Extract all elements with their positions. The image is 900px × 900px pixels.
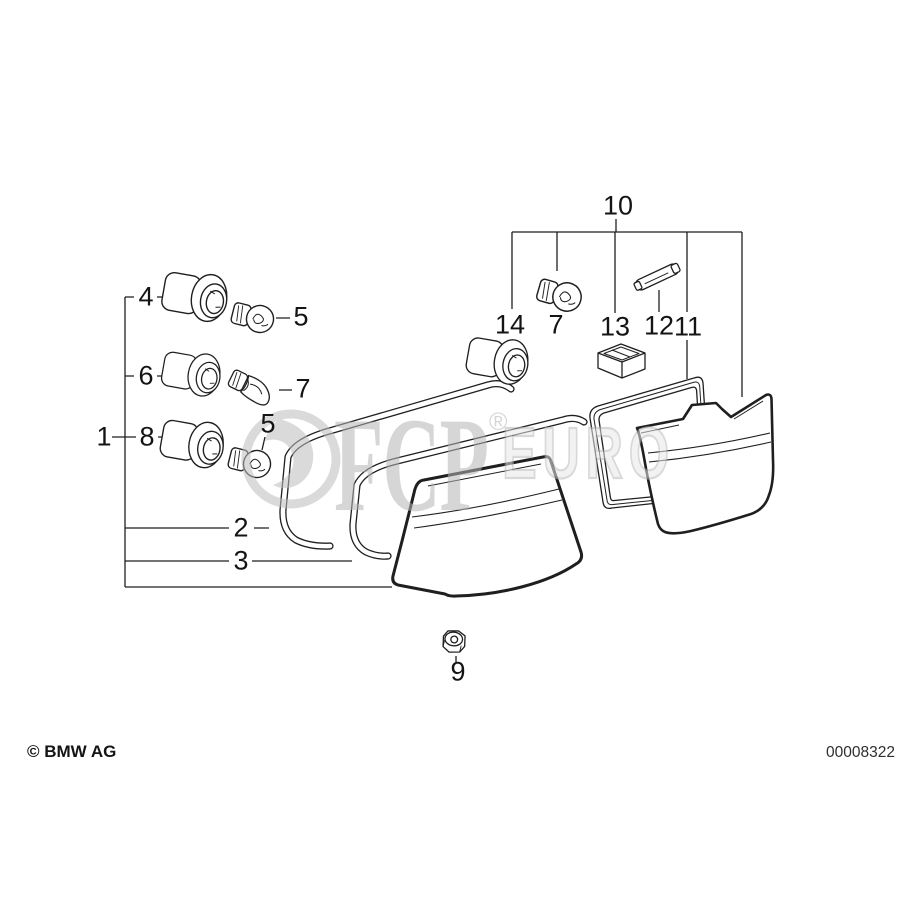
festoon-bulb-12 bbox=[633, 262, 681, 292]
tail-light-lens-right bbox=[637, 395, 773, 534]
bulb-socket-14 bbox=[464, 332, 532, 387]
bulb-5-bottom bbox=[227, 444, 274, 480]
bulb-socket-4 bbox=[160, 267, 231, 324]
tail-light-lens-center bbox=[393, 457, 582, 596]
copyright-text: © BMW AG bbox=[27, 742, 116, 762]
parts-diagram-page: FCP ® EURO 1 2 3 4 5 5 6 7 7 8 9 10 11 1… bbox=[0, 0, 900, 900]
callout-7-top: 7 bbox=[548, 312, 563, 339]
bulb-socket-6 bbox=[160, 347, 224, 399]
callout-2: 2 bbox=[233, 515, 248, 542]
diagram-number-text: 00008322 bbox=[826, 744, 895, 762]
callout-7-left: 7 bbox=[295, 376, 310, 403]
leader-dashes bbox=[157, 297, 456, 662]
callout-6: 6 bbox=[138, 363, 153, 390]
callout-4: 4 bbox=[138, 284, 153, 311]
bulb-7-left bbox=[226, 369, 275, 408]
callout-3: 3 bbox=[233, 548, 248, 575]
parts-diagram-lineart bbox=[0, 0, 900, 900]
hex-nut-9 bbox=[442, 630, 466, 654]
callout-10: 10 bbox=[603, 193, 633, 220]
bulb-carrier-13 bbox=[598, 344, 645, 378]
callout-5-top: 5 bbox=[293, 304, 308, 331]
callout-12: 12 bbox=[644, 313, 674, 340]
callout-13: 13 bbox=[600, 314, 630, 341]
callout-8: 8 bbox=[139, 424, 154, 451]
callout-5-bottom: 5 bbox=[260, 411, 275, 438]
callout-11: 11 bbox=[674, 314, 702, 341]
callout-9: 9 bbox=[450, 659, 465, 686]
callout-1: 1 bbox=[96, 424, 111, 451]
bulb-socket-8 bbox=[158, 415, 227, 471]
callout-14: 14 bbox=[495, 312, 525, 339]
bulb-5-top bbox=[230, 299, 277, 335]
